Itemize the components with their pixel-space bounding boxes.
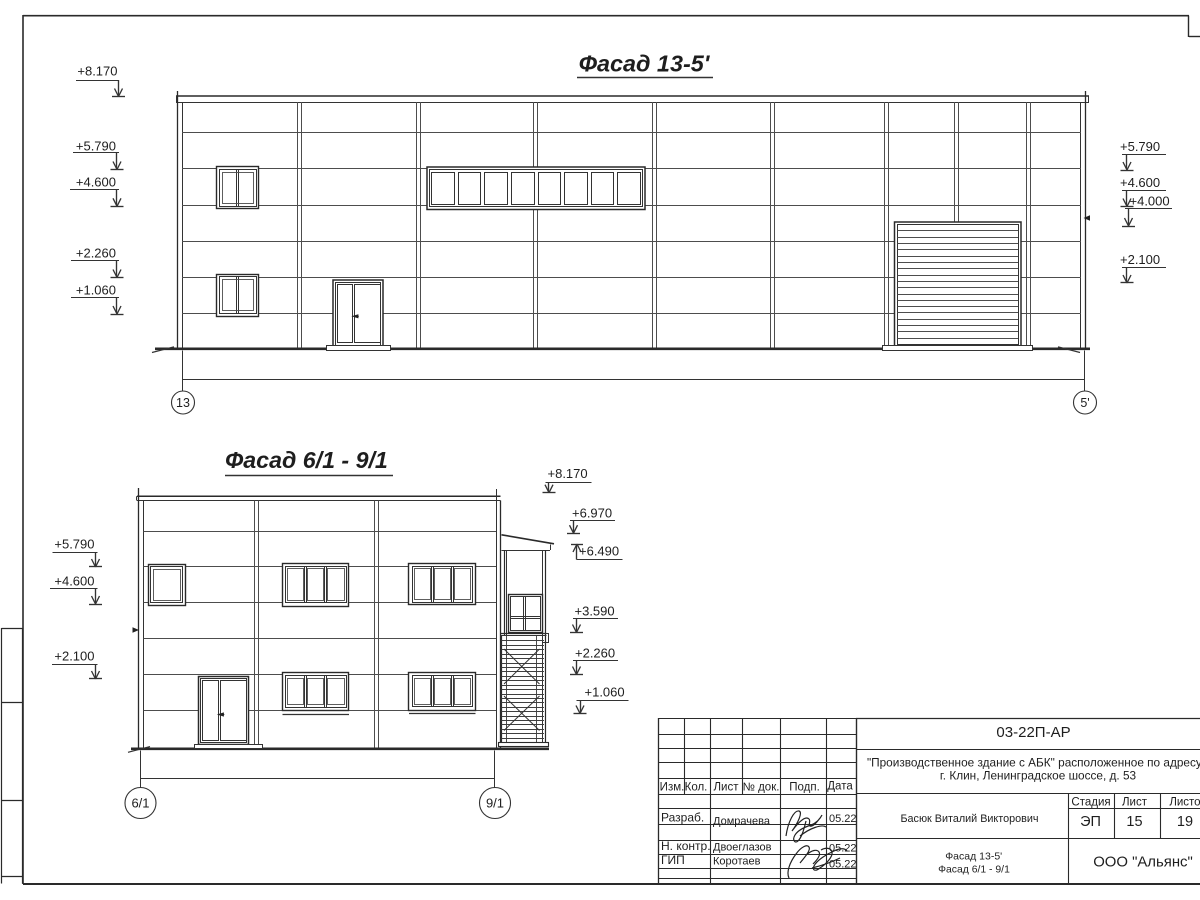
svg-text:03-22П-АР: 03-22П-АР (996, 724, 1070, 741)
svg-text:Коротаев: Коротаев (713, 856, 761, 868)
svg-text:15: 15 (1126, 814, 1142, 830)
svg-text:№ док.: № док. (743, 782, 780, 794)
svg-text:ЭП: ЭП (1080, 814, 1101, 830)
svg-text:9/1: 9/1 (486, 796, 504, 811)
svg-text:Кол.: Кол. (685, 782, 708, 794)
svg-text:Стадия: Стадия (1071, 797, 1110, 809)
svg-text:+2.260: +2.260 (76, 246, 116, 261)
svg-text:+2.100: +2.100 (1120, 252, 1160, 267)
svg-text:Лист: Лист (1122, 797, 1148, 809)
svg-text:Изм.: Изм. (660, 782, 685, 794)
svg-text:+1.060: +1.060 (585, 685, 625, 700)
svg-text:Двоеглазов: Двоеглазов (713, 842, 772, 854)
svg-text:5': 5' (1080, 396, 1089, 410)
svg-text:+4.600: +4.600 (54, 574, 94, 589)
svg-text:+4.600: +4.600 (76, 175, 116, 190)
svg-text:+8.170: +8.170 (77, 64, 117, 79)
svg-text:13: 13 (176, 396, 190, 410)
svg-text:"Производственное здание с АБК: "Производственное здание с АБК" располож… (867, 756, 1200, 770)
svg-text:Дата: Дата (827, 781, 853, 793)
svg-text:+1.060: +1.060 (76, 283, 116, 298)
svg-text:Лист: Лист (714, 782, 740, 794)
svg-text:Фасад 6/1 - 9/1: Фасад 6/1 - 9/1 (225, 447, 388, 473)
svg-text:+3.590: +3.590 (575, 604, 615, 619)
svg-text:Басюк Виталий Викторович: Басюк Виталий Викторович (900, 813, 1038, 825)
svg-text:Фасад 13-5': Фасад 13-5' (579, 51, 711, 77)
svg-text:Домрачева: Домрачева (713, 816, 771, 828)
svg-text:+2.260: +2.260 (575, 646, 615, 661)
svg-text:+8.170: +8.170 (548, 466, 588, 481)
svg-text:Листов: Листов (1169, 797, 1200, 809)
svg-text:+6.970: +6.970 (572, 506, 612, 521)
svg-text:+5.790: +5.790 (76, 139, 116, 154)
svg-text:Разраб.: Разраб. (661, 811, 704, 825)
svg-text:6/1: 6/1 (131, 796, 149, 811)
svg-text:г. Клин, Ленинградское шоссе,: г. Клин, Ленинградское шоссе, д. 53 (940, 769, 1137, 783)
svg-text:05.22: 05.22 (829, 859, 857, 871)
svg-text:19: 19 (1177, 814, 1193, 830)
svg-text:+5.790: +5.790 (54, 537, 94, 552)
svg-text:Фасад 13-5': Фасад 13-5' (945, 851, 1002, 863)
svg-text:ГИП: ГИП (661, 853, 685, 867)
svg-text:+5.790: +5.790 (1120, 139, 1160, 154)
svg-text:+4.600: +4.600 (1120, 175, 1160, 190)
svg-text:Фасад 6/1 - 9/1: Фасад 6/1 - 9/1 (938, 864, 1010, 875)
svg-text:+4.000: +4.000 (1130, 194, 1170, 209)
svg-text:ООО "Альянс": ООО "Альянс" (1093, 855, 1193, 871)
svg-text:Подп.: Подп. (789, 782, 820, 794)
svg-text:+6.490: +6.490 (579, 544, 619, 559)
svg-text:+2.100: +2.100 (54, 649, 94, 664)
svg-text:05.22: 05.22 (829, 813, 857, 825)
svg-text:Н. контр.: Н. контр. (661, 839, 711, 853)
